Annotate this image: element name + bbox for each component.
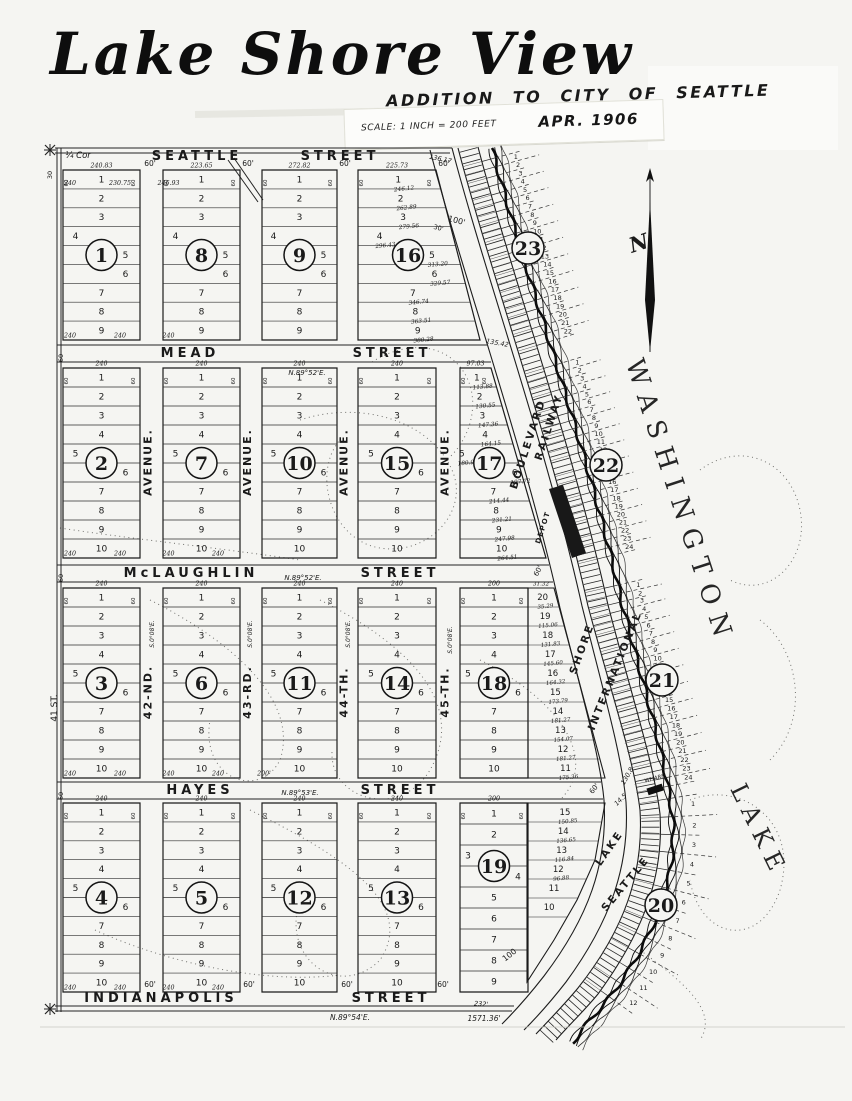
lot-number: 13	[556, 846, 567, 856]
tie-mark	[640, 850, 658, 852]
lot-number: 2	[297, 827, 303, 837]
block-number: 18	[481, 673, 507, 695]
tie-mark	[469, 182, 486, 187]
lot-number: 8	[99, 507, 105, 517]
block-number: 2	[95, 453, 108, 475]
block-dim: 240	[63, 551, 76, 558]
tie-mark	[557, 475, 574, 480]
shore-lot-number: 6	[587, 398, 591, 406]
tie-mark	[618, 927, 634, 935]
lot-number: 9	[496, 526, 502, 536]
lot-depth: 60	[359, 812, 365, 819]
block-number: 8	[195, 245, 208, 267]
block-dim: 240	[161, 771, 174, 778]
shore-lot-number: 20	[559, 311, 567, 319]
lot-number: 9	[491, 978, 497, 988]
lot-number: 9	[394, 746, 400, 756]
annotation: 41 ST.	[50, 694, 60, 721]
lot-number: 8	[297, 308, 303, 318]
lot-number: 5	[173, 670, 179, 680]
line	[595, 548, 609, 551]
lot-dim: 175.36	[558, 774, 579, 782]
lot-number: 8	[199, 941, 205, 951]
block-dim: 240	[161, 551, 174, 558]
lot-number: 4	[173, 232, 179, 242]
line	[499, 216, 512, 220]
line	[610, 977, 622, 985]
lot-number: 5	[73, 884, 79, 894]
lot-number: 20	[537, 593, 548, 603]
lot-number: 4	[199, 651, 205, 661]
lot-number: 11	[560, 764, 571, 774]
street-suffix: STREET	[353, 346, 432, 361]
block-dim: 240	[94, 361, 107, 368]
shore-lot-number: 8	[530, 211, 534, 219]
lot-number: 3	[491, 632, 497, 642]
lot-number: 4	[199, 865, 205, 875]
tie-mark	[461, 153, 478, 158]
lot-number: 5	[73, 670, 79, 680]
tie-mark	[609, 943, 625, 952]
block-dim: 240	[94, 796, 107, 803]
lot-number: 5	[368, 670, 374, 680]
north-arrow: N	[625, 168, 655, 352]
lot-dim: 150.85	[558, 818, 579, 826]
lot-depth: 60	[131, 377, 137, 384]
lake-label: LAKE	[725, 779, 794, 882]
lot-number: 10	[488, 765, 500, 775]
tie-mark	[597, 632, 614, 637]
lot-number: 8	[199, 308, 205, 318]
lot-number: 5	[123, 251, 129, 261]
tie-mark	[463, 159, 480, 164]
annotation: 135.42	[485, 337, 509, 349]
lot-number: 9	[99, 327, 105, 337]
lot-number: 7	[99, 488, 105, 498]
annotation: S.0°08'E.	[247, 620, 254, 648]
line	[548, 448, 567, 454]
lot-number: 6	[123, 689, 129, 699]
lot-number: 1	[297, 808, 303, 818]
lot-number: 2	[394, 613, 400, 623]
lot-number: 6	[515, 689, 521, 699]
line	[629, 755, 648, 760]
shore-lot-number: 9	[653, 646, 657, 654]
tie-mark	[581, 569, 598, 573]
block-dim: 240	[211, 771, 224, 778]
lot-dim: 380.28	[413, 336, 434, 344]
block-number: 22	[593, 455, 619, 477]
lot-number: 9	[297, 526, 303, 536]
boundary-lines	[40, 144, 845, 1027]
lot-number: 5	[173, 450, 179, 460]
annotation: 60'	[438, 159, 450, 168]
tie-mark	[639, 796, 657, 799]
lot-number: 1	[99, 175, 105, 185]
tie-mark	[493, 263, 510, 268]
lot-number: 2	[99, 194, 105, 204]
block-dim: 225.73	[385, 163, 408, 170]
tie-mark	[641, 844, 659, 845]
riparian-line	[674, 815, 717, 817]
tie-mark	[481, 222, 498, 227]
line	[489, 183, 502, 187]
line	[477, 212, 496, 218]
line	[653, 885, 667, 888]
lot-depth: 60	[359, 597, 365, 604]
lot-number: 1	[394, 808, 400, 818]
lot-number: 7	[491, 936, 497, 946]
line	[527, 376, 546, 382]
lot-dim: 313.20	[427, 261, 448, 269]
lot-number: 1	[199, 594, 205, 604]
shore-lot-number: 2	[516, 161, 520, 169]
line	[505, 304, 524, 310]
lot-number: 3	[99, 632, 105, 642]
street-name: HAYES	[166, 783, 233, 798]
lot-number: 10	[294, 765, 306, 775]
lot-number: 3	[297, 846, 303, 856]
lot-number: 9	[297, 746, 303, 756]
lot-number: 6	[123, 469, 129, 479]
avenue-name-lower: 45-TH.	[439, 666, 452, 717]
block-dim: 200	[487, 581, 500, 588]
lot-depth: 60	[263, 179, 269, 186]
line	[560, 420, 573, 424]
lot-number: 6	[321, 469, 327, 479]
tie-mark	[615, 696, 632, 701]
line	[587, 516, 601, 520]
line	[598, 638, 617, 643]
line	[529, 384, 548, 390]
line	[501, 225, 514, 229]
block-dim: 240	[63, 985, 76, 992]
lot-number: 1	[99, 594, 105, 604]
lot-number: 8	[491, 727, 497, 737]
tie-mark	[523, 360, 540, 365]
street-name: INDIANAPOLIS	[84, 991, 237, 1006]
lot-number: 2	[199, 613, 205, 623]
lot-number: 6	[321, 903, 327, 913]
lot-number: 8	[199, 727, 205, 737]
lot-depth: 60	[461, 597, 467, 604]
shore-lot-number: 22	[564, 327, 572, 335]
shore-lot-number: 8	[668, 935, 672, 943]
lot-number: 4	[297, 431, 303, 441]
shore-lot-number: 4	[521, 178, 525, 186]
lot-number: 5	[321, 251, 327, 261]
annotation: 30'	[433, 223, 445, 233]
lot-number: 6	[223, 270, 229, 280]
lot-number: 5	[271, 450, 277, 460]
block-number: 5	[195, 888, 208, 910]
lot-number: 2	[394, 827, 400, 837]
block-18-right-tier: 2035.2919115.0618131.8317145.6016164.321…	[528, 582, 605, 783]
lot-number: 9	[199, 746, 205, 756]
lot-depth: 60	[519, 812, 525, 819]
line	[521, 291, 534, 295]
tie-mark	[612, 938, 628, 947]
shore-lot-number: 18	[612, 494, 620, 502]
avenue-name-upper: AVENUE.	[439, 428, 452, 496]
line	[594, 965, 611, 976]
lot-depth: 60	[263, 812, 269, 819]
lot-number: 6	[418, 903, 424, 913]
line	[633, 772, 653, 776]
tie-mark	[584, 580, 602, 584]
lot-number: 3	[99, 412, 105, 422]
lot-number: 9	[99, 526, 105, 536]
lot-number: 12	[553, 865, 564, 875]
lot-number: 2	[99, 613, 105, 623]
tie-mark	[474, 199, 491, 204]
lot-dim: 147.36	[478, 421, 499, 429]
lot-depth: 60	[427, 597, 433, 604]
lot-number: 10	[391, 765, 403, 775]
block-number: 15	[384, 453, 410, 475]
tie-mark	[622, 917, 638, 924]
lot-number: 1	[491, 810, 497, 820]
shoreline-wave	[489, 149, 672, 1042]
shore-lot-number: 4	[642, 605, 646, 613]
shore-lot-number: 19	[674, 730, 682, 738]
lot-number: 10	[544, 903, 555, 913]
lot-dim: 247.98	[493, 535, 515, 543]
lot-number: 4	[377, 232, 383, 242]
block-number: 12	[286, 888, 312, 910]
riparian-line	[670, 781, 696, 786]
line	[578, 484, 591, 488]
lot-dim: 136.65	[556, 837, 577, 845]
shore-lot-number: 7	[676, 917, 680, 925]
block-dim: 240.83	[89, 163, 112, 170]
streets-layer: SEATTLESTREETMEADSTREETMcLAUGHLINSTREETH…	[84, 149, 451, 1006]
lot-number: 3	[297, 213, 303, 223]
lot-number: 7	[410, 289, 416, 299]
lot-dim: 181.27	[551, 717, 572, 725]
line	[529, 316, 542, 320]
shore-lot-number: 15	[665, 696, 673, 704]
avenue-name-upper: AVENUE.	[338, 428, 351, 496]
lot-number: 8	[493, 507, 499, 517]
lot-dim: 329.57	[430, 280, 451, 288]
lot-number: 1	[99, 374, 105, 384]
block-dim: 246.93	[156, 180, 179, 187]
line	[569, 452, 582, 456]
block-6: 1234567891062402406060	[113, 581, 240, 779]
line	[470, 187, 489, 192]
line	[482, 158, 496, 162]
lot-number: 2	[99, 827, 105, 837]
lot-number: 8	[297, 507, 303, 517]
lot-number: 11	[549, 884, 560, 894]
shore-lot-number: 3	[692, 841, 696, 849]
annotation: 60'	[532, 564, 544, 577]
line	[524, 368, 543, 374]
annotation: 60'	[243, 980, 255, 989]
lot-number: 9	[199, 960, 205, 970]
lot-number: 1	[474, 374, 480, 384]
shore-lot-number: 4	[690, 860, 694, 868]
avenue-45th: AVENUE.45-TH.	[439, 428, 452, 717]
tie-mark	[618, 707, 635, 712]
lot-dim: 262.89	[395, 204, 417, 212]
line	[551, 388, 564, 392]
lot-number: 5	[173, 884, 179, 894]
block-number: 6	[195, 673, 208, 695]
tie-mark	[511, 320, 528, 325]
lot-number: 1	[199, 374, 205, 384]
avenue-name-upper: AVENUE.	[142, 428, 155, 496]
lot-number: 2	[297, 393, 303, 403]
lot-depth: 60	[64, 179, 70, 186]
lot-number: 9	[297, 327, 303, 337]
block-19: 12345678919200606015150.8514136.6513116.…	[460, 796, 605, 993]
tie-mark	[578, 557, 595, 561]
railway-label: SEATTLE	[599, 854, 652, 914]
line	[519, 283, 532, 287]
lot-number: 7	[199, 922, 205, 932]
shore-lot-number: 1	[575, 359, 579, 367]
lot-dim: 35.29	[537, 603, 554, 611]
line	[659, 851, 673, 852]
lot-number: 7	[99, 289, 105, 299]
lot-number: 7	[199, 488, 205, 498]
avenue-name-lower: 44-TH.	[338, 666, 351, 717]
tie-mark	[471, 188, 488, 193]
annotation: ¼ Cor	[65, 151, 91, 161]
lot-number: 10	[196, 545, 208, 555]
lot-depth: 60	[519, 597, 525, 604]
lot-number: 7	[297, 922, 303, 932]
lot-number: 9	[199, 526, 205, 536]
annotation: N.89°52'E.	[288, 369, 325, 377]
lot-depth: 60	[231, 377, 237, 384]
tie-mark	[634, 884, 651, 889]
annotation: N.89°54'E.	[330, 1013, 370, 1022]
street-name: McLAUGHLIN	[124, 566, 259, 581]
tie-mark	[505, 303, 522, 308]
lot-number: 5	[491, 894, 497, 904]
lot-number: 8	[99, 941, 105, 951]
annotation: 60'	[144, 159, 156, 168]
lot-number: 6	[321, 689, 327, 699]
tie-mark	[478, 211, 495, 216]
block-16: 1246.122262.893279.564296.435313.206329.…	[358, 163, 480, 345]
lot-depth: 60	[64, 812, 70, 819]
lot-number: 5	[465, 670, 471, 680]
line	[567, 444, 580, 448]
lot-number: 5	[459, 450, 465, 460]
lot-depth: 60	[328, 812, 334, 819]
block-number: 1	[95, 245, 108, 267]
shore-lot-number: 16	[667, 704, 675, 712]
lot-number: 5	[73, 450, 79, 460]
lot-number: 10	[196, 765, 208, 775]
lot-number: 13	[555, 726, 566, 736]
lot-depth: 60	[427, 377, 433, 384]
tie-mark	[495, 268, 512, 273]
shore-lot-number: 10	[654, 654, 662, 662]
annotation: 60'	[437, 980, 449, 989]
shore-lot-number: 5	[644, 613, 648, 621]
lot-number: 1	[199, 175, 205, 185]
lot-number: 1	[395, 175, 401, 185]
lot-number: 6	[123, 270, 129, 280]
tie-mark	[625, 911, 642, 918]
lot-depth: 60	[427, 812, 433, 819]
tie-mark	[490, 251, 507, 256]
block-number: 20	[648, 895, 674, 917]
lot-number: 2	[394, 393, 400, 403]
shore-lot-number: 6	[525, 194, 529, 202]
shore-lot-number: 21	[561, 319, 569, 327]
lot-number: 9	[99, 746, 105, 756]
tie-mark	[526, 372, 543, 377]
street-name: SEATTLE	[152, 149, 243, 164]
lot-number: 7	[99, 922, 105, 932]
lot-number: 1	[99, 808, 105, 818]
lot-number: 4	[99, 865, 105, 875]
lot-depth: 60	[427, 179, 433, 186]
line	[510, 320, 529, 326]
tie-mark	[552, 458, 569, 463]
line	[491, 191, 504, 195]
lot-depth: 60	[131, 179, 137, 186]
lot-number: 6	[432, 270, 438, 280]
tie-mark	[630, 754, 647, 758]
lot-number: 4	[297, 651, 303, 661]
shore-lot-number: 17	[670, 713, 678, 721]
shore-lot-number: 19	[615, 502, 623, 510]
shore-lot-number: 2	[692, 821, 696, 829]
lot-number: 3	[394, 632, 400, 642]
shore-lot-number: 18	[672, 721, 680, 729]
lot-number: 5	[271, 670, 277, 680]
shore-lot-number: 6	[682, 899, 686, 907]
tie-mark	[585, 586, 603, 590]
line	[648, 752, 662, 755]
lot-depth: 60	[328, 179, 334, 186]
lot-number: 6	[123, 903, 129, 913]
block-7: 1234567891072402406060	[113, 361, 240, 559]
line	[512, 329, 531, 335]
annotation: 60'	[144, 980, 156, 989]
lot-number: 3	[465, 852, 471, 862]
block-19-right-tier: 15150.8514136.6513116.841296.881110	[527, 803, 605, 982]
block-number: 10	[286, 453, 312, 475]
tie-mark	[591, 609, 608, 614]
lot-number: 7	[394, 708, 400, 718]
lot-number: 7	[297, 708, 303, 718]
tie-mark	[615, 933, 631, 941]
annotation: 1571.36'	[467, 1014, 500, 1023]
line	[642, 726, 656, 730]
map-label: 31.32	[533, 582, 549, 588]
lot-number: 6	[223, 469, 229, 479]
lot-dim: 363.51	[411, 318, 432, 326]
line	[465, 170, 484, 175]
line	[612, 618, 626, 622]
block-dim: 240	[113, 333, 126, 340]
tie-mark	[633, 766, 651, 770]
block-number: 23	[515, 238, 541, 260]
lot-number: 17	[545, 650, 556, 660]
line	[502, 295, 521, 301]
block-dim: 230.75	[108, 180, 131, 187]
block-number: 21	[649, 670, 675, 692]
line	[487, 245, 506, 251]
